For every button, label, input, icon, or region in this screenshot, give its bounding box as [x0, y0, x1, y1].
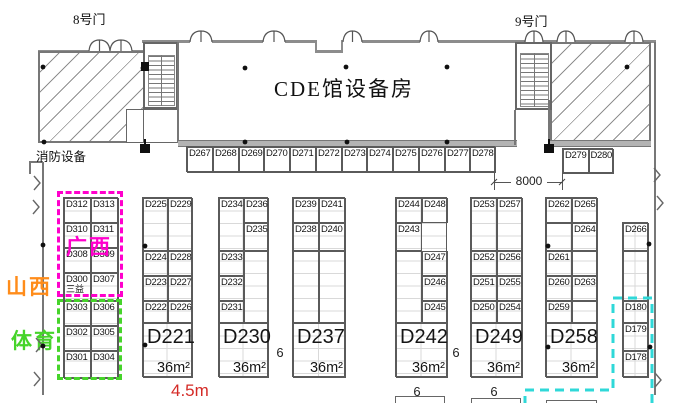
block-d242: D244D248D243D247D246D245D24236m² [395, 197, 447, 377]
booth-D245[interactable]: D245 [422, 301, 448, 323]
dim-ext-right [562, 172, 563, 190]
booth-D269[interactable]: D269 [239, 147, 264, 173]
wall-top-3 [285, 40, 317, 43]
booth-number: D178 [625, 352, 647, 363]
booth-D255[interactable]: D255 [497, 276, 523, 301]
stairwell-right [515, 42, 552, 110]
booth-number: D239 [295, 199, 317, 210]
booth-number: D251 [473, 277, 495, 288]
booth-D238[interactable]: D238 [293, 223, 319, 251]
booth-number: D232 [221, 277, 243, 288]
booth-D250[interactable]: D250 [471, 301, 497, 323]
booth-D227[interactable]: D227 [168, 276, 193, 301]
region-label-tiyu: 体育 [11, 325, 57, 355]
wall-right-bottom [550, 140, 651, 147]
door-arc-icon [110, 40, 132, 51]
booth-D246[interactable]: D246 [422, 276, 448, 301]
booth-number: D260 [548, 277, 570, 288]
booth-number: D267 [189, 148, 211, 159]
booth-D229[interactable]: D229 [168, 198, 193, 251]
door-arc-icon [343, 31, 362, 42]
door-arc-icon [263, 31, 285, 42]
booth-D276[interactable]: D276 [419, 147, 445, 173]
booth-number: D234 [221, 199, 243, 210]
block-d258: D262D265D264D261D260D263D259D25836m² [545, 197, 597, 377]
booth-D280[interactable]: D280 [589, 149, 615, 174]
booth-number: D237 [297, 326, 345, 348]
booth-number: D235 [246, 224, 268, 235]
booth-D265[interactable]: D265 [572, 198, 598, 223]
booth-number: D277 [447, 148, 469, 159]
door-arc-icon [420, 31, 438, 42]
booth-cell-empty [546, 223, 572, 251]
booth-number: D268 [215, 148, 237, 159]
hall-title: CDE馆设备房 [274, 73, 414, 103]
booth-D233[interactable]: D233 [219, 251, 244, 276]
booth-D262[interactable]: D262 [546, 198, 572, 223]
booth-number: D265 [574, 199, 596, 210]
booth-number: D221 [147, 326, 195, 348]
booth-number: D248 [424, 199, 446, 210]
wall-step-left-v [29, 161, 31, 174]
booth-D221[interactable]: D22136m² [143, 323, 193, 378]
block-d230: D234D236D235D233D232D231D23036m² [218, 197, 268, 377]
booth-number: D273 [344, 148, 366, 159]
booth-D263[interactable]: D263 [572, 276, 598, 301]
booth-number: D226 [170, 302, 192, 313]
booth-number: D266 [625, 224, 647, 235]
booth-D232[interactable]: D232 [219, 276, 244, 301]
booth-number: D275 [395, 148, 417, 159]
booth-D237[interactable]: D23736m² [293, 323, 346, 378]
booth-D271[interactable]: D271 [290, 147, 316, 173]
block-right-column: D266D180D179D178 [622, 222, 648, 377]
booth-number: D236 [246, 199, 268, 210]
booth-number: D258 [550, 326, 598, 348]
booth-D230[interactable]: D23036m² [219, 323, 269, 378]
booth-D235[interactable]: D235 [244, 223, 269, 251]
booth-number: D249 [475, 326, 523, 348]
aisle-width-label-1: 6 [272, 345, 288, 360]
booth-cell-empty [293, 251, 319, 323]
booth-number: D253 [473, 199, 495, 210]
block-d237: D239D241D238D240D23736m² [292, 197, 345, 377]
booth-D279[interactable]: D279 [563, 149, 589, 174]
booth-D180[interactable]: D180 [623, 301, 649, 323]
wall-break-icon [655, 373, 661, 387]
booth-D266[interactable]: D266 [623, 223, 649, 251]
booth-D270[interactable]: D270 [264, 147, 290, 173]
booth-D259[interactable]: D259 [546, 301, 572, 323]
booth-area-label: 36m² [310, 361, 343, 376]
booth-D242[interactable]: D24236m² [396, 323, 448, 378]
booth-number: D269 [241, 148, 263, 159]
booth-D272[interactable]: D272 [316, 147, 342, 173]
booth-number: D225 [145, 199, 167, 210]
booth-D248[interactable]: D248 [422, 198, 448, 223]
booth-D239[interactable]: D239 [293, 198, 319, 223]
booth-D264[interactable]: D264 [572, 223, 598, 251]
booth-D179[interactable]: D179 [623, 323, 649, 351]
door-arc-icon [190, 31, 212, 42]
booth-D223[interactable]: D223 [143, 276, 168, 301]
booth-D231[interactable]: D231 [219, 301, 244, 323]
fire-equipment-label: 消防设备 [36, 146, 86, 165]
booth-D274[interactable]: D274 [367, 147, 393, 173]
wall-top-notch-r [341, 40, 343, 52]
booth-D252[interactable]: D252 [471, 251, 497, 276]
booth-D247[interactable]: D247 [422, 251, 448, 276]
booth-number: D263 [574, 277, 596, 288]
booth-strip-top: D267D268D269D270D271D272D273D274D275D276… [186, 146, 495, 172]
dim-ext-left [494, 172, 495, 190]
booth-area-label: 36m² [412, 361, 445, 376]
booth-area-label: 36m² [562, 361, 595, 376]
booth-number: D279 [565, 150, 587, 161]
booth-number: D233 [221, 252, 243, 263]
booth-number: D179 [625, 324, 647, 335]
wall-top-4 [362, 40, 420, 43]
booth-number: D246 [424, 277, 446, 288]
booth-D254[interactable]: D254 [497, 301, 523, 323]
booth-number: D270 [266, 148, 288, 159]
booth-number: D243 [398, 224, 420, 235]
booth-number: D244 [398, 199, 420, 210]
booth-cell-empty [244, 251, 269, 323]
stairwell-left-room [143, 109, 178, 143]
gate9-label: 9号门 [515, 11, 548, 30]
booth-number: D262 [548, 199, 570, 210]
booth-D236[interactable]: D236 [244, 198, 269, 223]
booth-D228[interactable]: D228 [168, 251, 193, 276]
booth-cell-empty [319, 251, 346, 323]
gate8-label: 8号门 [73, 9, 106, 28]
booth-number: D224 [145, 252, 167, 263]
booth-number: D240 [321, 224, 343, 235]
booth-number: D241 [321, 199, 343, 210]
booth-number: D228 [170, 252, 192, 263]
booth-number: D245 [424, 302, 446, 313]
wall-break-icon [34, 372, 40, 386]
booth-area-label: 36m² [233, 361, 266, 376]
booth-area-label: 36m² [487, 361, 520, 376]
booth-number: D254 [499, 302, 521, 313]
hatch-area-right [550, 42, 651, 143]
aisle-width-label-3: 6 [409, 384, 425, 399]
booth-number: D180 [625, 302, 647, 313]
booth-number: D257 [499, 199, 521, 210]
booth-D241[interactable]: D241 [319, 198, 346, 223]
booth-D226[interactable]: D226 [168, 301, 193, 323]
booth-number: D231 [221, 302, 243, 313]
booth-strip-gate9: D279D280 [562, 148, 613, 173]
aisle-width-label-2: 6 [448, 345, 464, 360]
wall-break-icon [33, 200, 39, 214]
column-dot-icon [243, 66, 248, 71]
region-box-tiyu [57, 299, 122, 380]
booth-D261[interactable]: D261 [546, 251, 572, 276]
booth-area-label: 36m² [157, 361, 190, 376]
booth-number: D264 [574, 224, 596, 235]
booth-number: D274 [369, 148, 391, 159]
wall-hall-left [177, 42, 179, 143]
booth-D251[interactable]: D251 [471, 276, 497, 301]
region-label-guangxi: 广西 [66, 231, 112, 261]
booth-number: D227 [170, 277, 192, 288]
stairs-midline-right [534, 53, 535, 107]
column-dot-icon [344, 65, 349, 70]
floor-plan: 8000 D267D268D269D270D271D272D273D274D27… [0, 0, 680, 403]
booth-D258[interactable]: D25836m² [546, 323, 598, 378]
booth-D253[interactable]: D253 [471, 198, 497, 251]
booth-number: D250 [473, 302, 495, 313]
booth-number: D280 [591, 150, 613, 161]
booth-number: D261 [548, 252, 570, 263]
block-d249: D253D257D252D256D251D255D250D254D24936m² [470, 197, 522, 377]
booth-D225[interactable]: D225 [143, 198, 168, 251]
booth-D275[interactable]: D275 [393, 147, 419, 173]
booth-D222[interactable]: D222 [143, 301, 168, 323]
wall-top-2 [212, 40, 263, 43]
booth-number: D222 [145, 302, 167, 313]
booth-D268[interactable]: D268 [213, 147, 239, 173]
booth-number: D271 [292, 148, 314, 159]
booth-number: D229 [170, 199, 192, 210]
booth-D260[interactable]: D260 [546, 276, 572, 301]
wall-top-5 [438, 40, 525, 43]
booth-cell-empty [623, 251, 649, 301]
corridor-gate9-right [548, 100, 550, 143]
equipment-marker-icon [140, 144, 150, 153]
booth-D178[interactable]: D178 [623, 351, 649, 378]
wall-break-icon [657, 196, 663, 210]
booth-D256[interactable]: D256 [497, 251, 523, 276]
region-label-shanxi: 山西 [6, 271, 52, 301]
booth-number: D238 [295, 224, 317, 235]
booth-D273[interactable]: D273 [342, 147, 367, 173]
booth-number: D278 [472, 148, 494, 159]
corridor-gate9-left [514, 110, 516, 145]
booth-D278[interactable]: D278 [470, 147, 496, 173]
booth-number: D252 [473, 252, 495, 263]
wall-break-icon [34, 176, 40, 190]
booth-D267[interactable]: D267 [187, 147, 213, 173]
booth-number: D230 [223, 326, 271, 348]
booth-number: D223 [145, 277, 167, 288]
booth-width-label: 4.5m [171, 381, 209, 401]
door-arc-icon [89, 40, 110, 51]
booth-D234[interactable]: D234 [219, 198, 244, 251]
block-d221: D225D229D224D228D223D227D222D226D22136m² [142, 197, 192, 377]
aisle-width-label-4: 6 [486, 384, 502, 399]
column-dot-icon [445, 65, 450, 70]
stairwell-left [143, 42, 178, 109]
booth-D224[interactable]: D224 [143, 251, 168, 276]
booth-D257[interactable]: D257 [497, 198, 523, 251]
wall-top-notch-b [315, 50, 343, 53]
booth-number: D276 [421, 148, 443, 159]
dim-8000-label: 8000 [511, 174, 547, 188]
booth-cell-empty [572, 251, 598, 276]
booth-number: D256 [499, 252, 521, 263]
booth-number: D259 [548, 302, 570, 313]
booth-number: D247 [424, 252, 446, 263]
booth-cell-empty [572, 301, 598, 323]
door-arc-icon [525, 31, 543, 42]
door-arc-icon [557, 31, 575, 42]
booth-D249[interactable]: D24936m² [471, 323, 523, 378]
booth-D243[interactable]: D243 [396, 223, 422, 251]
booth-D244[interactable]: D244 [396, 198, 422, 223]
wall-outer-right [654, 42, 656, 395]
booth-cell-empty [396, 251, 422, 323]
stairs-midline-left [161, 55, 162, 106]
booth-number: D255 [499, 277, 521, 288]
door-arc-icon [625, 31, 643, 42]
booth-number: D242 [400, 326, 448, 348]
booth-D240[interactable]: D240 [319, 223, 346, 251]
booth-D277[interactable]: D277 [445, 147, 470, 173]
booth-number: D272 [318, 148, 340, 159]
